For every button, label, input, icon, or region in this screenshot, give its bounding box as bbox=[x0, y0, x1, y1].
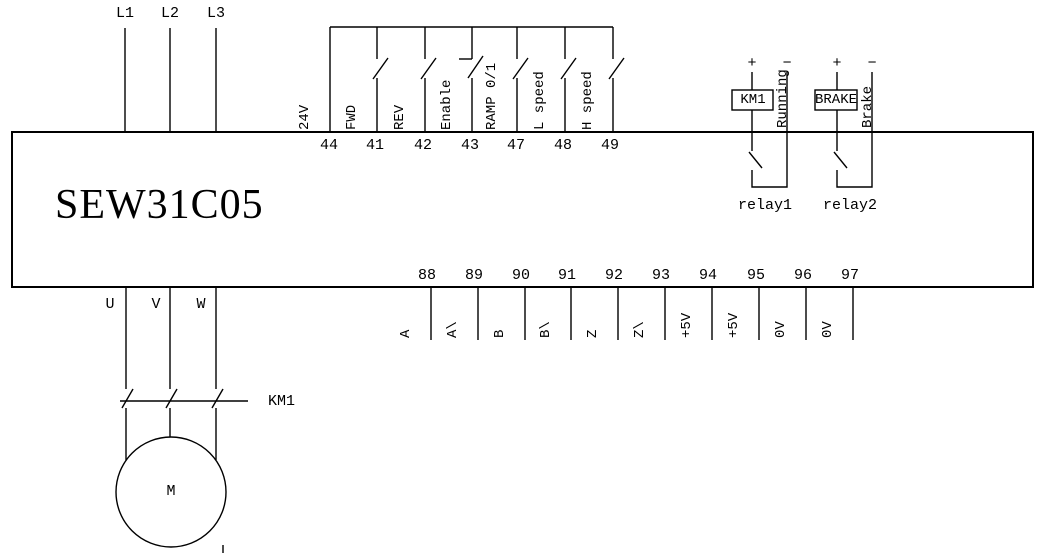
encoder-0v-label-1: 0V bbox=[773, 321, 789, 338]
relay1-plus-sign: + bbox=[747, 56, 756, 72]
km1-coil-label: KM1 bbox=[740, 92, 765, 108]
device-model-label: SEW31C05 bbox=[55, 184, 264, 226]
terminal-number-89: 89 bbox=[465, 268, 483, 284]
encoder-a-label: A bbox=[398, 330, 414, 338]
terminal-number-96: 96 bbox=[794, 268, 812, 284]
terminal-number-49: 49 bbox=[601, 138, 619, 154]
encoder-b-label: B bbox=[492, 330, 508, 338]
terminal-number-92: 92 bbox=[605, 268, 623, 284]
terminal-number-48: 48 bbox=[554, 138, 572, 154]
switch-rev-icon bbox=[421, 27, 436, 132]
terminal-lspeed-label: L speed bbox=[532, 71, 548, 130]
encoder-a-inv-label: A\ bbox=[445, 321, 461, 338]
relay2-minus-sign: − bbox=[867, 56, 876, 72]
switch-hspeed-icon bbox=[609, 27, 624, 132]
motor-symbol-label: M bbox=[166, 484, 175, 500]
power-input-lines bbox=[125, 28, 216, 132]
terminal-number-90: 90 bbox=[512, 268, 530, 284]
terminal-number-93: 93 bbox=[652, 268, 670, 284]
terminal-24v-label: 24V bbox=[297, 105, 313, 130]
terminal-number-95: 95 bbox=[747, 268, 765, 284]
power-line-l3-label: L3 bbox=[207, 6, 225, 22]
terminal-number-91: 91 bbox=[558, 268, 576, 284]
switch-enable-icon bbox=[459, 27, 483, 132]
terminal-number-97: 97 bbox=[841, 268, 859, 284]
running-signal-label: Running bbox=[775, 69, 791, 128]
relay1-name-label: relay1 bbox=[738, 198, 792, 214]
relay2-name-label: relay2 bbox=[823, 198, 877, 214]
terminal-ramp-label: RAMP 0/1 bbox=[484, 63, 500, 130]
switch-ramp-icon bbox=[513, 27, 528, 132]
relay2-plus-sign: + bbox=[832, 56, 841, 72]
terminal-fwd-label: FWD bbox=[344, 105, 360, 130]
phase-v-label: V bbox=[151, 297, 160, 313]
encoder-z-inv-label: Z\ bbox=[632, 321, 648, 338]
km1-contactor-icon bbox=[120, 389, 248, 408]
motor-circuit bbox=[116, 287, 248, 553]
encoder-0v-label-2: 0V bbox=[820, 321, 836, 338]
brake-coil-label: BRAKE bbox=[815, 92, 857, 108]
power-line-l2-label: L2 bbox=[161, 6, 179, 22]
switch-lspeed-icon bbox=[561, 27, 576, 132]
phase-w-label: W bbox=[196, 297, 205, 313]
terminal-rev-label: REV bbox=[392, 105, 408, 130]
terminal-hspeed-label: H speed bbox=[580, 71, 596, 130]
phase-u-label: U bbox=[105, 297, 114, 313]
encoder-z-label: Z bbox=[585, 330, 601, 338]
brake-signal-label: Brake bbox=[860, 86, 876, 128]
power-line-l1-label: L1 bbox=[116, 6, 134, 22]
terminal-enable-label: Enable bbox=[439, 80, 455, 130]
terminal-number-94: 94 bbox=[699, 268, 717, 284]
terminal-number-41: 41 bbox=[366, 138, 384, 154]
inverter-wiring-diagram: L1 L2 L3 SEW31C05 24V FWD REV Enable RAM… bbox=[0, 0, 1045, 560]
encoder-5v-label-1: +5V bbox=[679, 313, 695, 338]
terminal-number-43: 43 bbox=[461, 138, 479, 154]
terminal-number-47: 47 bbox=[507, 138, 525, 154]
km1-contactor-label: KM1 bbox=[268, 394, 295, 410]
terminal-number-42: 42 bbox=[414, 138, 432, 154]
encoder-b-inv-label: B\ bbox=[538, 321, 554, 338]
terminal-number-44: 44 bbox=[320, 138, 338, 154]
switch-fwd-icon bbox=[373, 27, 388, 132]
encoder-5v-label-2: +5V bbox=[726, 313, 742, 338]
terminal-number-88: 88 bbox=[418, 268, 436, 284]
